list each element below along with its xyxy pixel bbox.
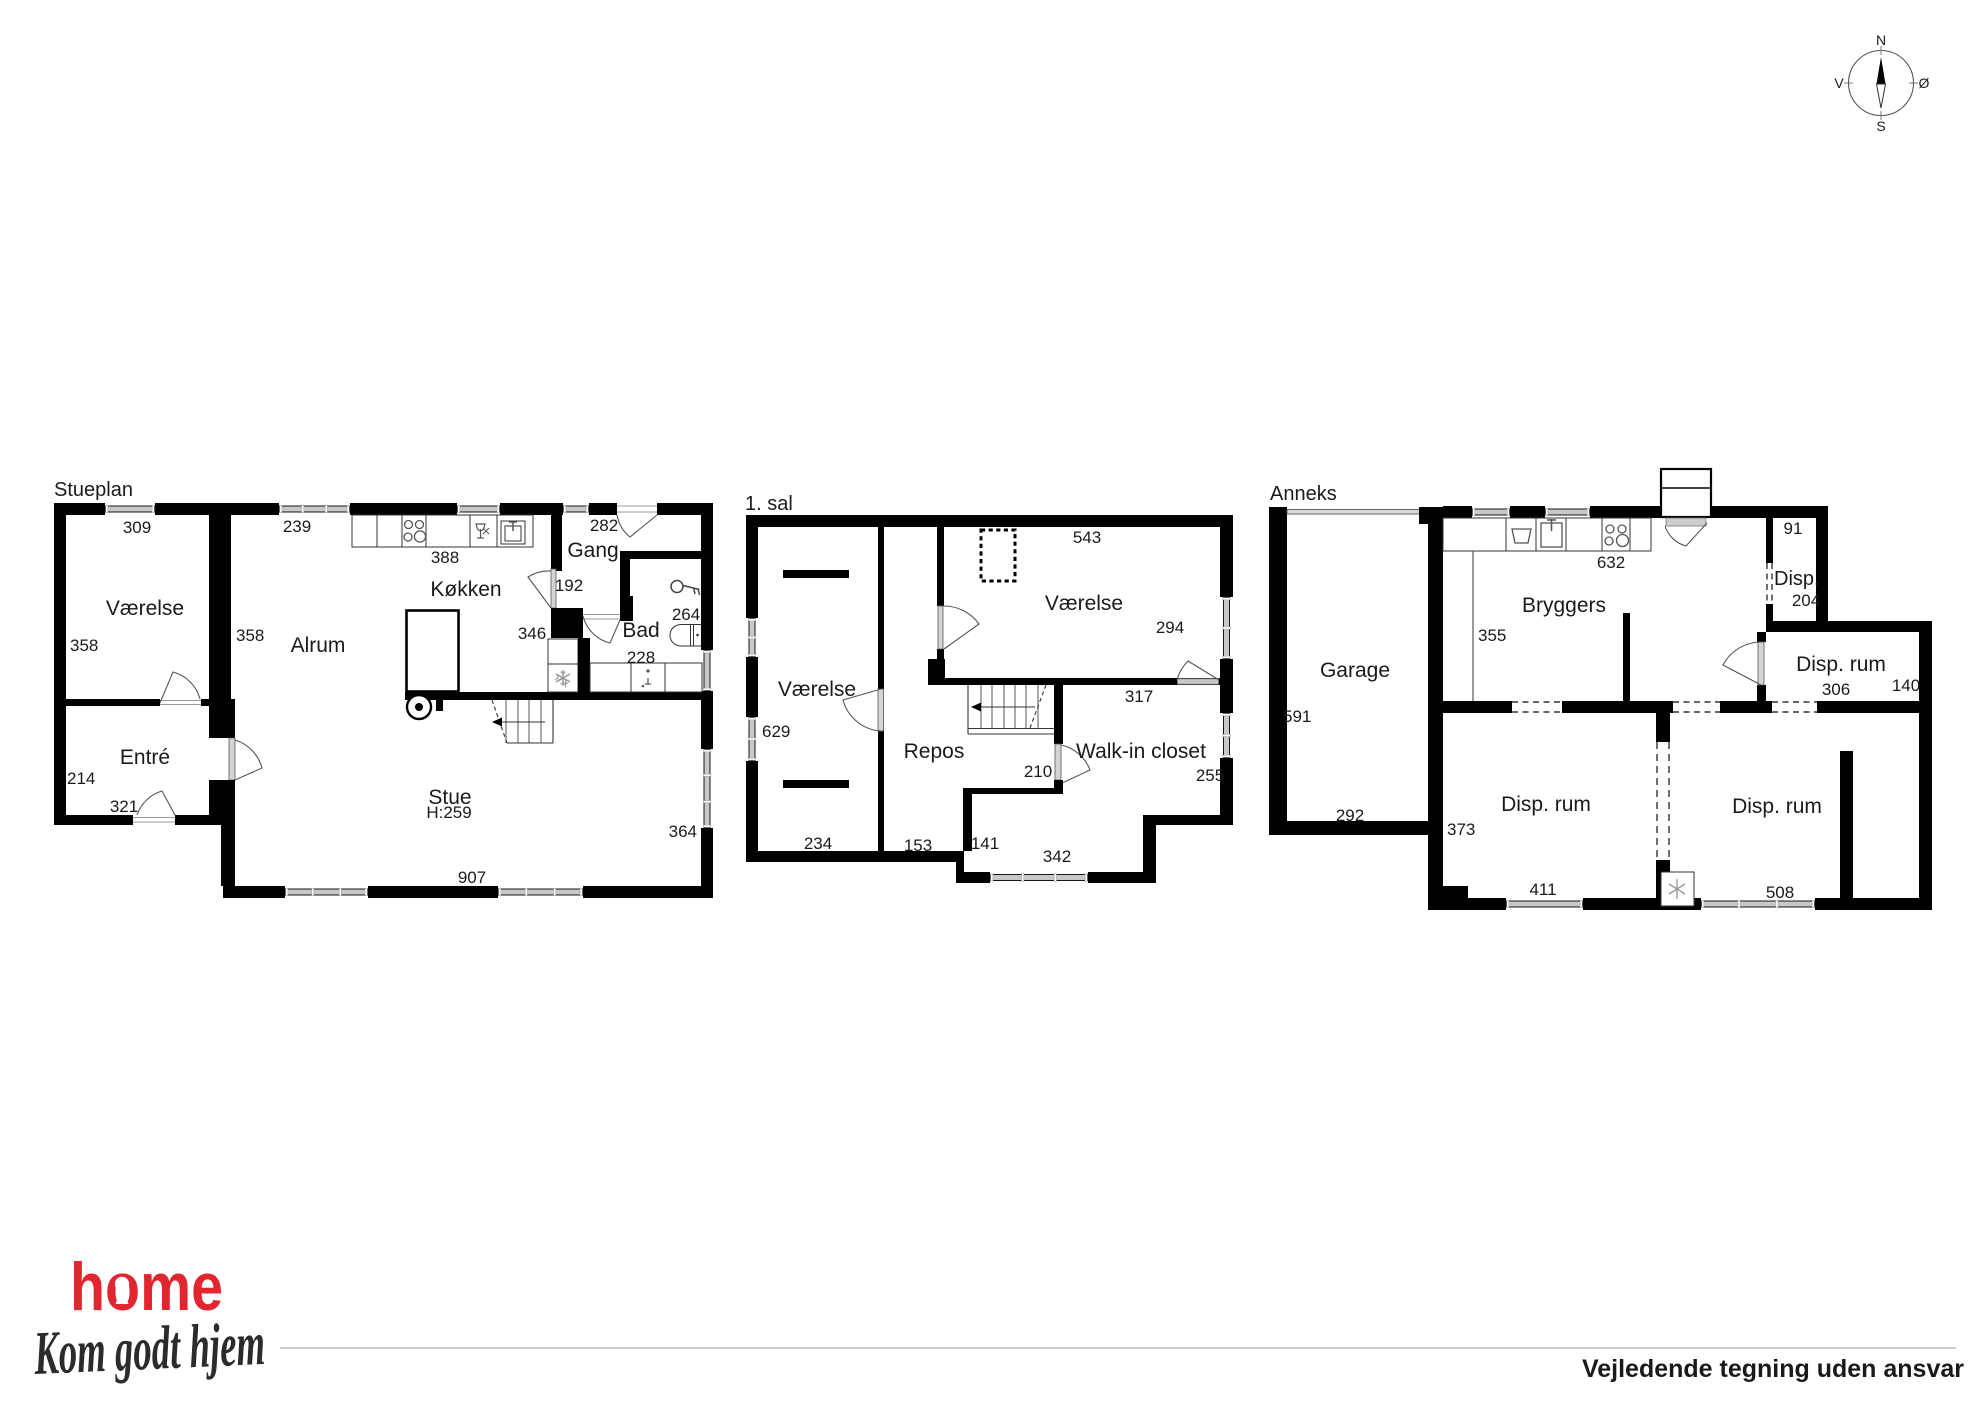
svg-text:255: 255 [1196,766,1224,785]
svg-text:306: 306 [1822,680,1850,699]
svg-text:204: 204 [1792,591,1820,610]
svg-text:632: 632 [1597,553,1625,572]
svg-text:Entré: Entré [120,746,170,769]
svg-text:358: 358 [236,626,264,645]
svg-text:Gang: Gang [567,539,618,562]
svg-text:Stueplan: Stueplan [54,479,133,501]
svg-text:Køkken: Køkken [430,578,501,601]
svg-text:Disp. rum: Disp. rum [1501,793,1591,816]
svg-text:Værelse: Værelse [1045,592,1123,615]
svg-text:141: 141 [971,834,999,853]
svg-text:Repos: Repos [904,740,965,763]
svg-text:373: 373 [1447,820,1475,839]
svg-text:Bryggers: Bryggers [1522,594,1606,617]
svg-text:91: 91 [1784,519,1803,538]
svg-text:Disp.: Disp. [1774,568,1820,590]
svg-text:Garage: Garage [1320,659,1390,682]
svg-text:1. sal: 1. sal [745,493,793,515]
svg-text:192: 192 [555,576,583,595]
svg-text:282: 282 [590,516,618,535]
svg-text:591: 591 [1283,707,1311,726]
svg-text:342: 342 [1043,847,1071,866]
svg-text:234: 234 [804,834,832,853]
svg-text:Vejledende tegning uden ansvar: Vejledende tegning uden ansvar [1582,1355,1964,1383]
svg-text:214: 214 [67,769,95,788]
svg-text:239: 239 [283,517,311,536]
svg-text:346: 346 [518,624,546,643]
svg-text:309: 309 [123,518,151,537]
svg-text:N: N [1876,32,1886,48]
svg-text:Anneks: Anneks [1270,483,1337,505]
svg-text:Disp. rum: Disp. rum [1796,653,1886,676]
svg-text:V: V [1834,75,1844,91]
svg-text:Kom godt hjem: Kom godt hjem [32,1310,266,1388]
svg-text:358: 358 [70,636,98,655]
svg-text:543: 543 [1073,528,1101,547]
svg-text:Ø: Ø [1919,75,1930,91]
svg-text:S: S [1876,118,1885,134]
svg-text:321: 321 [110,797,138,816]
svg-text:210: 210 [1024,762,1052,781]
svg-text:294: 294 [1156,618,1184,637]
svg-text:317: 317 [1125,687,1153,706]
svg-text:411: 411 [1529,880,1556,899]
svg-text:Alrum: Alrum [291,634,346,657]
svg-text:264: 264 [672,605,700,624]
svg-text:907: 907 [458,868,486,887]
svg-text:388: 388 [431,548,459,567]
svg-text:629: 629 [762,722,790,741]
svg-text:Bad: Bad [622,619,659,642]
svg-text:Walk-in closet: Walk-in closet [1076,740,1206,763]
svg-text:364: 364 [669,822,697,841]
svg-text:140: 140 [1892,676,1920,695]
svg-text:355: 355 [1478,626,1506,645]
svg-text:Værelse: Værelse [106,597,184,620]
svg-text:Værelse: Værelse [778,678,856,701]
svg-text:292: 292 [1336,806,1364,825]
svg-text:228: 228 [627,648,655,667]
svg-text:H:259: H:259 [426,803,471,822]
svg-text:Disp. rum: Disp. rum [1732,795,1822,818]
svg-text:508: 508 [1766,883,1794,902]
svg-text:153: 153 [904,836,932,855]
